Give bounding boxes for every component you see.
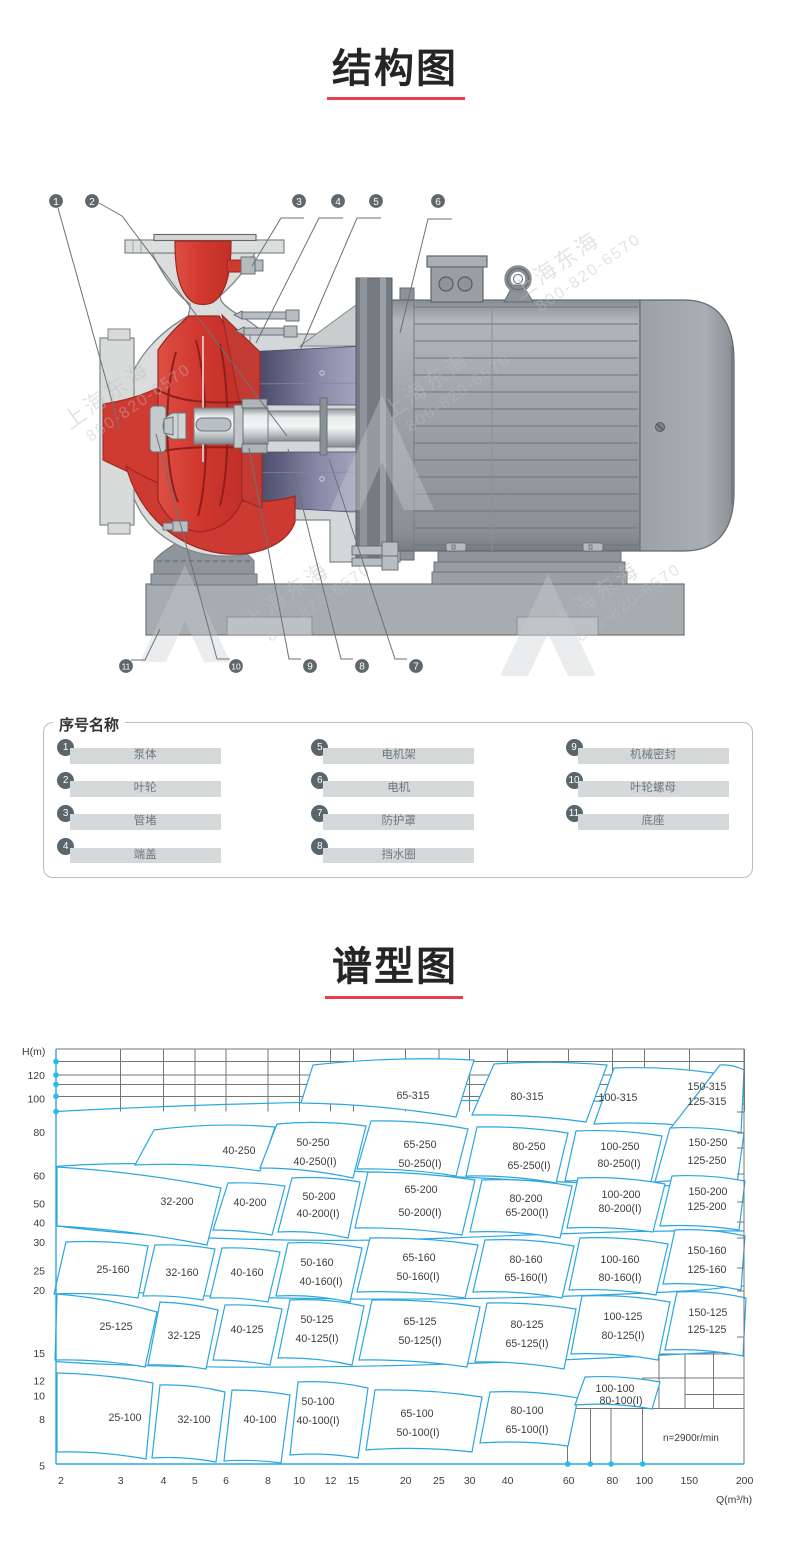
- svg-text:60: 60: [563, 1475, 575, 1487]
- svg-text:150: 150: [681, 1475, 699, 1487]
- svg-text:65-250: 65-250: [404, 1139, 437, 1151]
- svg-text:32-200: 32-200: [161, 1196, 194, 1208]
- svg-text:100-160: 100-160: [601, 1254, 640, 1266]
- svg-text:15: 15: [347, 1475, 359, 1487]
- svg-text:20: 20: [33, 1285, 45, 1297]
- svg-text:125-250: 125-250: [688, 1155, 727, 1167]
- svg-text:65-250(I): 65-250(I): [508, 1160, 551, 1172]
- svg-text:40-125(I): 40-125(I): [296, 1333, 339, 1345]
- svg-text:125-315: 125-315: [688, 1096, 727, 1108]
- svg-text:80-315: 80-315: [511, 1091, 544, 1103]
- svg-text:50-200: 50-200: [303, 1191, 336, 1203]
- svg-text:65-125(I): 65-125(I): [506, 1338, 549, 1350]
- svg-text:4: 4: [161, 1475, 167, 1487]
- svg-text:10: 10: [293, 1475, 305, 1487]
- svg-text:80-160(I): 80-160(I): [599, 1272, 642, 1284]
- svg-text:50-250: 50-250: [297, 1137, 330, 1149]
- svg-text:65-315: 65-315: [397, 1090, 430, 1102]
- svg-text:65-160(I): 65-160(I): [505, 1272, 548, 1284]
- svg-text:15: 15: [33, 1348, 45, 1360]
- svg-text:50-100(I): 50-100(I): [397, 1427, 440, 1439]
- svg-text:50-160: 50-160: [301, 1257, 334, 1269]
- svg-text:6: 6: [223, 1475, 229, 1487]
- svg-text:12: 12: [325, 1475, 337, 1487]
- svg-text:7: 7: [413, 662, 419, 673]
- svg-text:8: 8: [39, 1414, 45, 1426]
- svg-text:40: 40: [502, 1475, 514, 1487]
- svg-text:8: 8: [359, 662, 365, 673]
- svg-text:50-160(I): 50-160(I): [397, 1271, 440, 1283]
- svg-text:40-200: 40-200: [234, 1197, 267, 1209]
- svg-text:65-125: 65-125: [404, 1316, 437, 1328]
- svg-text:1: 1: [53, 197, 59, 208]
- svg-text:80-250(I): 80-250(I): [598, 1158, 641, 1170]
- svg-text:25-100: 25-100: [109, 1412, 142, 1424]
- svg-text:150-200: 150-200: [689, 1186, 728, 1198]
- svg-text:125-200: 125-200: [688, 1201, 727, 1213]
- svg-text:H(m): H(m): [22, 1046, 45, 1058]
- svg-text:80: 80: [33, 1127, 45, 1139]
- svg-text:40-250(I): 40-250(I): [294, 1156, 337, 1168]
- svg-text:150-160: 150-160: [688, 1245, 727, 1257]
- svg-text:40-125: 40-125: [231, 1324, 264, 1336]
- svg-text:n=2900r/min: n=2900r/min: [663, 1433, 719, 1444]
- svg-text:3: 3: [296, 197, 302, 208]
- svg-text:25: 25: [33, 1265, 45, 1277]
- svg-text:200: 200: [736, 1475, 754, 1487]
- svg-text:40-100: 40-100: [244, 1414, 277, 1426]
- svg-text:12: 12: [33, 1376, 45, 1388]
- svg-text:5: 5: [192, 1475, 198, 1487]
- svg-text:50-125(I): 50-125(I): [399, 1335, 442, 1347]
- svg-text:100-100: 100-100: [596, 1383, 635, 1395]
- svg-text:5: 5: [373, 197, 379, 208]
- svg-text:40-200(I): 40-200(I): [297, 1208, 340, 1220]
- svg-text:2: 2: [58, 1475, 64, 1487]
- svg-text:80-100(I): 80-100(I): [600, 1395, 643, 1407]
- svg-text:Q(m³/h): Q(m³/h): [716, 1494, 752, 1506]
- svg-text:65-100(I): 65-100(I): [506, 1424, 549, 1436]
- svg-text:100: 100: [636, 1475, 654, 1487]
- svg-text:32-160: 32-160: [166, 1267, 199, 1279]
- svg-text:10: 10: [33, 1391, 45, 1403]
- svg-text:100-125: 100-125: [604, 1311, 643, 1323]
- svg-text:32-100: 32-100: [178, 1414, 211, 1426]
- svg-text:150-250: 150-250: [689, 1137, 728, 1149]
- svg-text:20: 20: [400, 1475, 412, 1487]
- svg-text:80-200(I): 80-200(I): [599, 1203, 642, 1215]
- svg-text:40-100(I): 40-100(I): [297, 1415, 340, 1427]
- svg-text:50-200(I): 50-200(I): [399, 1207, 442, 1219]
- svg-text:10: 10: [231, 662, 241, 672]
- svg-text:25-160: 25-160: [97, 1264, 130, 1276]
- svg-text:50-250(I): 50-250(I): [399, 1158, 442, 1170]
- svg-text:120: 120: [27, 1070, 45, 1082]
- svg-text:3: 3: [118, 1475, 124, 1487]
- svg-text:50: 50: [33, 1199, 45, 1211]
- svg-text:30: 30: [464, 1475, 476, 1487]
- svg-text:32-125: 32-125: [168, 1330, 201, 1342]
- svg-text:80: 80: [607, 1475, 619, 1487]
- svg-text:100-250: 100-250: [601, 1141, 640, 1153]
- svg-text:150-315: 150-315: [688, 1081, 727, 1093]
- svg-text:80-100: 80-100: [511, 1405, 544, 1417]
- svg-text:40-160: 40-160: [231, 1267, 264, 1279]
- svg-text:5: 5: [39, 1461, 45, 1473]
- svg-text:80-160: 80-160: [510, 1254, 543, 1266]
- svg-text:40-160(I): 40-160(I): [300, 1276, 343, 1288]
- svg-text:100-315: 100-315: [599, 1092, 638, 1104]
- svg-text:4: 4: [335, 197, 341, 208]
- svg-text:65-160: 65-160: [403, 1252, 436, 1264]
- svg-text:125-160: 125-160: [688, 1264, 727, 1276]
- svg-text:2: 2: [89, 197, 95, 208]
- svg-text:125-125: 125-125: [688, 1324, 727, 1336]
- svg-text:80-250: 80-250: [513, 1141, 546, 1153]
- svg-text:11: 11: [122, 662, 131, 672]
- svg-text:100-200: 100-200: [602, 1189, 641, 1201]
- svg-text:150-125: 150-125: [689, 1307, 728, 1319]
- svg-text:60: 60: [33, 1171, 45, 1183]
- svg-text:6: 6: [435, 197, 441, 208]
- svg-text:25-125: 25-125: [100, 1321, 133, 1333]
- svg-text:50-100: 50-100: [302, 1396, 335, 1408]
- svg-text:100: 100: [27, 1094, 45, 1106]
- svg-text:9: 9: [307, 662, 313, 673]
- svg-text:8: 8: [265, 1475, 271, 1487]
- svg-text:65-100: 65-100: [401, 1408, 434, 1420]
- svg-text:80-125: 80-125: [511, 1319, 544, 1331]
- svg-text:40-250: 40-250: [223, 1145, 256, 1157]
- svg-text:80-200: 80-200: [510, 1193, 543, 1205]
- svg-text:65-200: 65-200: [405, 1184, 438, 1196]
- svg-text:40: 40: [33, 1218, 45, 1230]
- svg-text:25: 25: [433, 1475, 445, 1487]
- svg-text:65-200(I): 65-200(I): [506, 1207, 549, 1219]
- svg-text:50-125: 50-125: [301, 1314, 334, 1326]
- svg-text:30: 30: [33, 1237, 45, 1249]
- svg-text:80-125(I): 80-125(I): [602, 1330, 645, 1342]
